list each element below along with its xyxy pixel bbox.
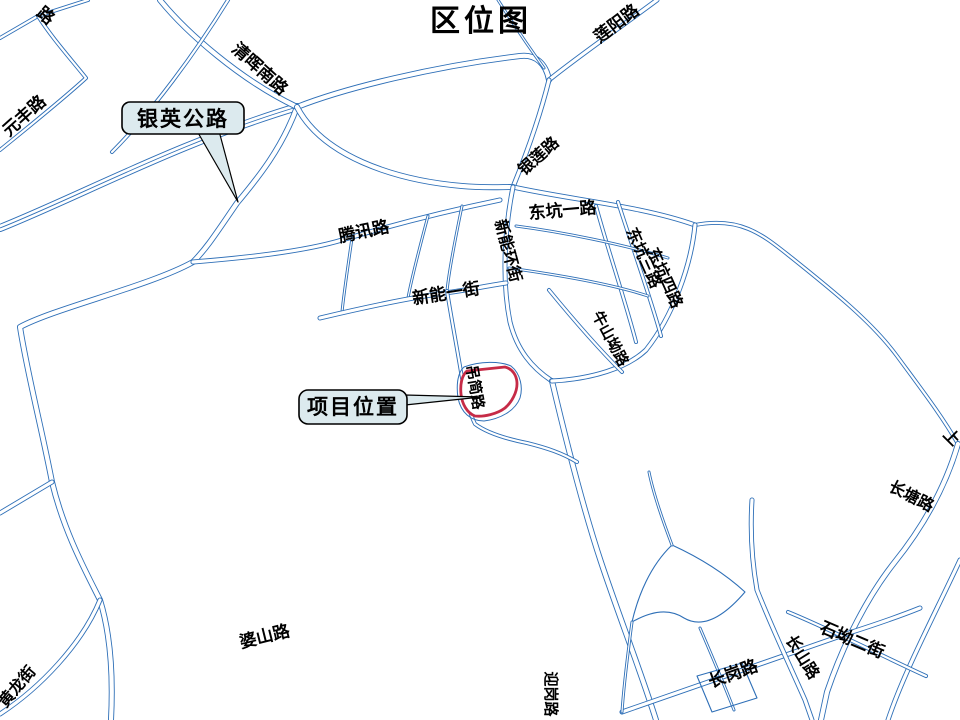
map-title: 区位图 — [430, 4, 532, 38]
callout-yinying-label: 银英公路 — [137, 107, 229, 131]
callout-project-label: 项目位置 — [307, 395, 399, 419]
road-label-yinggang: 迎岗路 — [542, 671, 560, 717]
location-map: 银英公路 项目位置 区位图 路 莲阳路 清晖南路 元丰路 银莲路 东坑一路 腾讯… — [0, 0, 960, 720]
